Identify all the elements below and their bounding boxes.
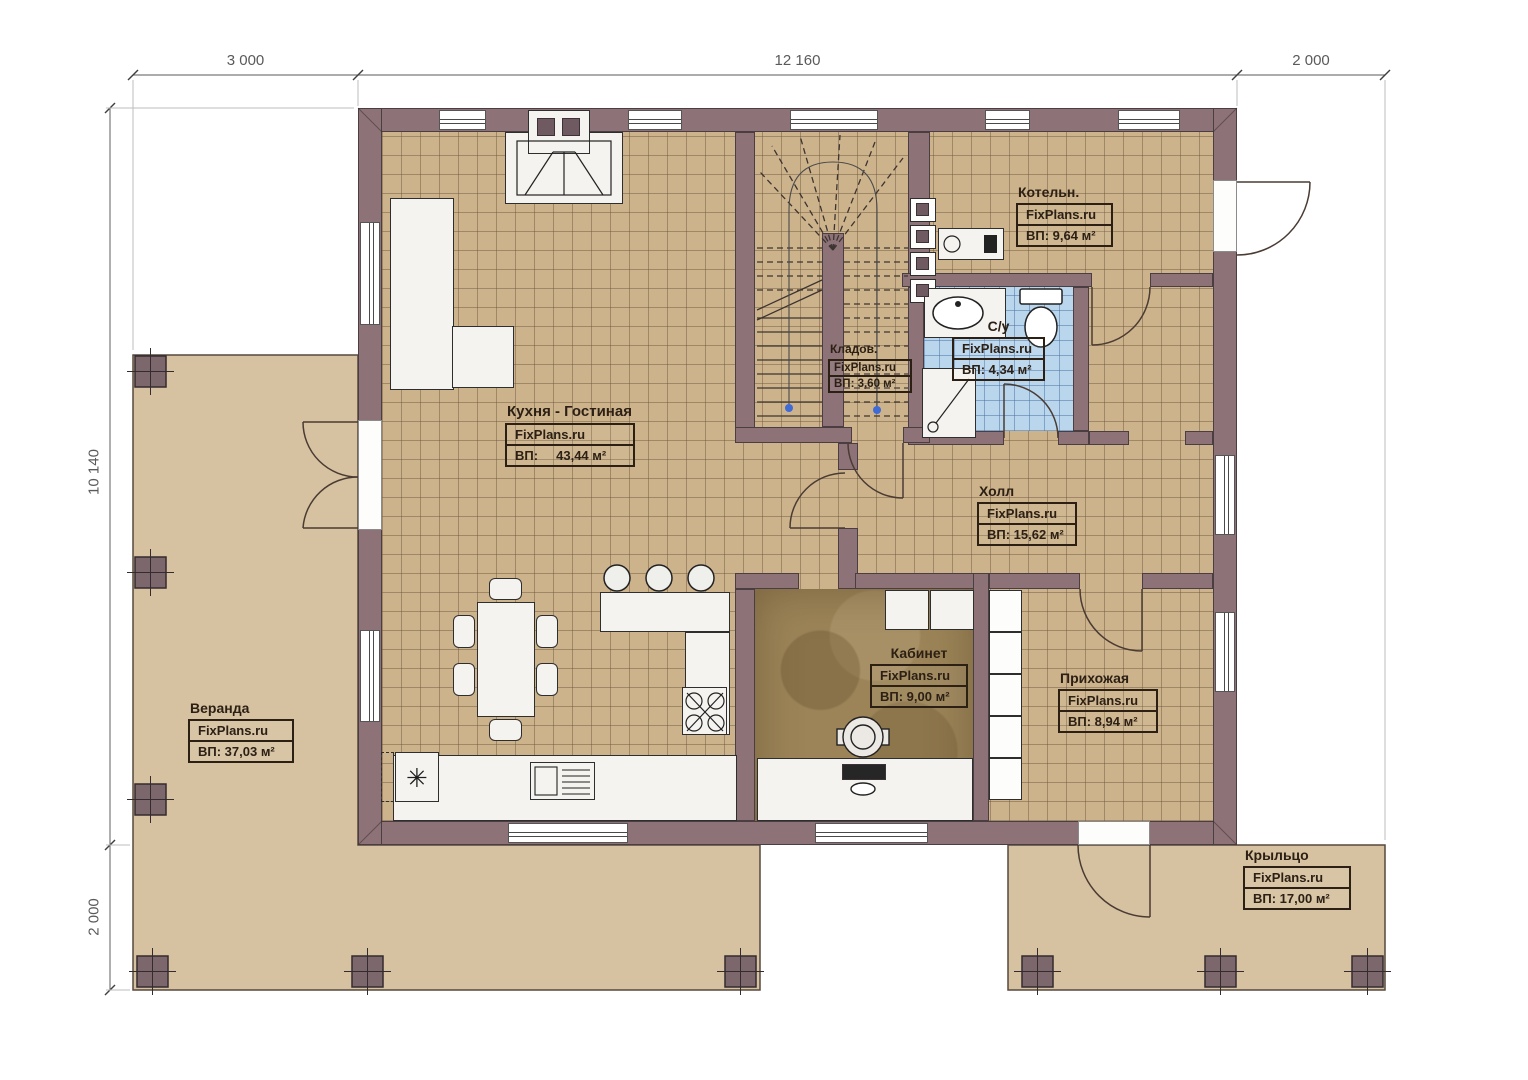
dim-left-top: 10 140: [86, 449, 103, 495]
room-area: ВП: 15,62 м²: [979, 525, 1075, 544]
dim-top-left: 3 000: [133, 52, 358, 69]
room-label-storage: Кладов. FixPlans.ru ВП: 3,60 м²: [828, 342, 912, 393]
dim-top-mid: 12 160: [358, 52, 1237, 69]
room-watermark: FixPlans.ru: [954, 339, 1043, 360]
kitchen-sink-detail: [535, 767, 590, 795]
room-info-box: FixPlans.ru ВП: 9,00 м²: [870, 664, 968, 708]
room-label-office: Кабинет FixPlans.ru ВП: 9,00 м²: [870, 645, 968, 708]
room-info-box: FixPlans.ru ВП: 43,44 м²: [505, 423, 635, 467]
room-watermark: FixPlans.ru: [979, 504, 1075, 525]
shower-detail: [928, 379, 969, 432]
room-info-box: FixPlans.ru ВП: 9,64 м²: [1016, 203, 1113, 247]
dim-top-right: 2 000: [1237, 52, 1385, 69]
stair-end-marker: [873, 406, 881, 414]
room-name: С/у: [952, 318, 1045, 334]
french-door: [303, 422, 358, 528]
hall-kitchen-door: [790, 473, 845, 528]
understair-door: [848, 443, 903, 498]
dim-left-bottom: 2 000: [86, 898, 103, 936]
bathroom-door: [1004, 384, 1058, 438]
room-watermark: FixPlans.ru: [1245, 868, 1349, 889]
room-label-veranda: Веранда FixPlans.ru ВП: 37,03 м²: [188, 700, 294, 763]
room-info-box: FixPlans.ru ВП: 15,62 м²: [977, 502, 1077, 546]
room-info-box: FixPlans.ru ВП: 4,34 м²: [952, 337, 1045, 381]
extension-line: [106, 80, 1385, 990]
room-label-hall: Холл FixPlans.ru ВП: 15,62 м²: [977, 483, 1077, 546]
doors: [303, 182, 1310, 917]
stair-start-marker: [785, 404, 793, 412]
room-label-porch: Крыльцо FixPlans.ru ВП: 17,00 м²: [1243, 847, 1351, 910]
room-info-box: FixPlans.ru ВП: 8,94 м²: [1058, 689, 1158, 733]
room-watermark: FixPlans.ru: [507, 425, 633, 446]
entry-room-door: [1080, 589, 1142, 651]
floor-plan: ✳: [0, 0, 1528, 1080]
room-watermark: FixPlans.ru: [190, 721, 292, 742]
room-area: ВП: 8,94 м²: [1060, 712, 1156, 731]
bar-stool: [604, 565, 714, 591]
room-watermark: FixPlans.ru: [830, 361, 910, 377]
room-area: ВП: 9,64 м²: [1018, 226, 1111, 245]
stove-burners: [686, 693, 724, 731]
boiler-exterior-door: [1237, 182, 1310, 255]
front-door: [1078, 845, 1150, 917]
room-name: Веранда: [190, 700, 294, 716]
fireplace-insert: [517, 141, 611, 195]
room-label-bath: С/у FixPlans.ru ВП: 4,34 м²: [952, 318, 1045, 381]
room-name: Прихожая: [1060, 670, 1158, 686]
boiler-equipment-detail: [944, 235, 997, 253]
room-watermark: FixPlans.ru: [1060, 691, 1156, 712]
room-watermark: FixPlans.ru: [872, 666, 966, 687]
room-area: ВП: 37,03 м²: [190, 742, 292, 761]
room-area: ВП: 4,34 м²: [954, 360, 1043, 379]
room-label-boiler: Котельн. FixPlans.ru ВП: 9,64 м²: [1016, 184, 1113, 247]
room-area: ВП: 3,60 м²: [830, 377, 910, 391]
stair-winders: [760, 135, 903, 250]
room-area: ВП: 17,00 м²: [1245, 889, 1349, 908]
dimension-tick: [105, 70, 1390, 995]
room-area: ВП: 9,00 м²: [872, 687, 966, 706]
room-label-entry: Прихожая FixPlans.ru ВП: 8,94 м²: [1058, 670, 1158, 733]
room-name: Кухня - Гостиная: [507, 403, 635, 420]
room-watermark: FixPlans.ru: [1018, 205, 1111, 226]
room-name: Кабинет: [870, 645, 968, 661]
room-name: Котельн.: [1018, 184, 1113, 200]
office-chair: [837, 717, 889, 795]
room-label-kitchen: Кухня - Гостиная FixPlans.ru ВП: 43,44 м…: [505, 403, 635, 467]
dimension-lines: [105, 70, 1390, 995]
corridor-door: [1092, 287, 1150, 345]
room-name: Крыльцо: [1245, 847, 1351, 863]
room-info-box: FixPlans.ru ВП: 37,03 м²: [188, 719, 294, 763]
room-area: ВП: 43,44 м²: [507, 446, 633, 465]
room-info-box: FixPlans.ru ВП: 3,60 м²: [828, 359, 912, 393]
room-name: Холл: [979, 483, 1077, 499]
room-name: Кладов.: [830, 342, 912, 356]
room-info-box: FixPlans.ru ВП: 17,00 м²: [1243, 866, 1351, 910]
